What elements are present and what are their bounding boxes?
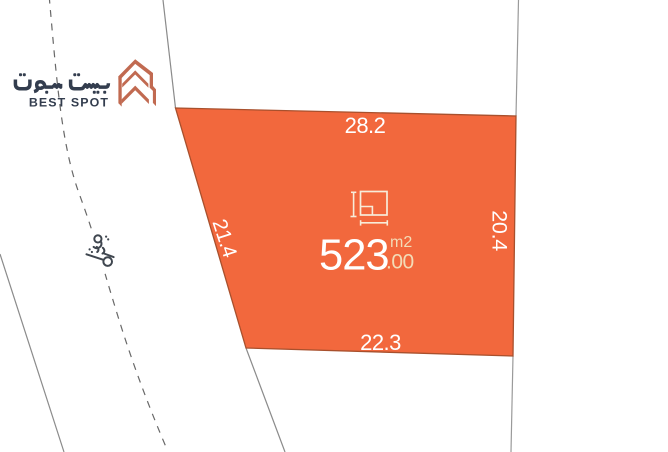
svg-text:BEST SPOT: BEST SPOT: [29, 95, 109, 109]
svg-text:m2: m2: [390, 234, 412, 251]
svg-text:22.3: 22.3: [360, 330, 401, 355]
svg-text:20.4: 20.4: [487, 210, 511, 251]
svg-text:28.2: 28.2: [345, 113, 386, 138]
svg-text:.00: .00: [386, 251, 414, 274]
svg-text:523: 523: [319, 231, 389, 279]
